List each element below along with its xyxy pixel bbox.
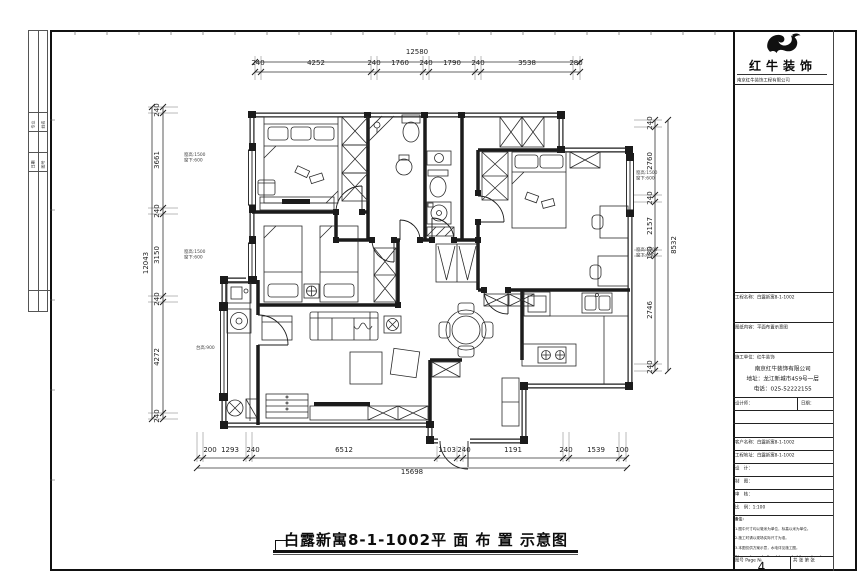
- kitchen-fixtures: [522, 292, 628, 384]
- title-block: 红牛装饰 南京红牛装饰工程有限公司 工程名称：白露新寓8-1-1002 图纸内容…: [733, 30, 833, 570]
- notes-cell: 备注： 1.图中尺寸均以毫米为单位，标高以米为单位。 2.施工时请以现场实际尺寸…: [733, 515, 833, 556]
- dim-label: 240: [646, 191, 654, 204]
- bathroom2-fixtures: [427, 151, 454, 236]
- note-line: 窗下:600: [184, 255, 203, 260]
- date-label: 日期：: [801, 400, 814, 406]
- side-table-lamp-icon: [384, 316, 401, 333]
- scale-row: 比 例：1:100: [733, 502, 833, 515]
- company-header: 施工单位：红牛装饰: [735, 354, 788, 360]
- blank-cell: [733, 84, 833, 292]
- notes-title: 备注：: [735, 517, 778, 521]
- project-name-cell: 工程名称：白露新寓8-1-1002: [733, 292, 833, 322]
- bedroom2-bed-icon: [512, 152, 566, 228]
- dim-bottom-total: 15698: [401, 468, 423, 476]
- dim-label: 1103: [438, 446, 456, 454]
- note-line: 台高:900: [196, 345, 215, 350]
- dim-label: 4252: [307, 59, 325, 67]
- entry-cabinet-icon: [502, 378, 519, 426]
- dim-label: 3538: [518, 59, 536, 67]
- bedroom2-corner-cabinet-icon: [570, 152, 600, 168]
- page-number: 4: [733, 560, 790, 570]
- window-note: 窗高:1500 窗下:600: [636, 247, 657, 258]
- check-label: 审 核：: [735, 491, 788, 497]
- company-phone: 电话：025-52222155: [735, 385, 830, 393]
- address-row: 工程地址：白露新寓8-1-1002: [733, 450, 833, 463]
- window-note: 窗高:1500 窗下:600: [184, 249, 205, 260]
- company-cell: 施工单位：红牛装饰 南京红牛装饰有限公司 地址：龙江新城市459号一层 电话：0…: [733, 352, 833, 397]
- dim-right-total: 8532: [670, 236, 678, 254]
- logo-cell: 红牛装饰 南京红牛装饰工程有限公司: [733, 30, 833, 84]
- cell-divider: [797, 398, 798, 410]
- dim-label: 3150: [153, 246, 161, 264]
- dim-label: 2760: [646, 152, 654, 170]
- drawing-content: 图纸内容：平面布置示意图: [735, 324, 788, 330]
- twin-beds-icon: [264, 226, 358, 302]
- note-line: 窗下:600: [636, 176, 655, 181]
- draft-row: 制 图：: [733, 476, 833, 489]
- dim-label: 240: [457, 446, 470, 454]
- bedroom2-wardrobe-icon: [482, 152, 508, 200]
- designer-label: 设计师：: [735, 400, 753, 406]
- drawing-title: 白露新寓8-1-1002平 面 布 置 示意图: [284, 529, 568, 550]
- dim-label: 6512: [335, 446, 353, 454]
- design-label: 设 计：: [735, 465, 788, 471]
- window-note: 台高:900: [196, 345, 215, 351]
- entry-closet-icon: [432, 362, 460, 377]
- note-line: 窗高:1500: [184, 152, 205, 157]
- interior-walls: [252, 115, 630, 425]
- note: 3.本图仅供方案示意，水电详见施工图。: [735, 546, 778, 550]
- note-line: 窗下:600: [636, 253, 655, 258]
- client-name: 客户名称：白露新寓8-1-1002: [735, 439, 788, 445]
- twin-wardrobe-icon: [374, 248, 396, 302]
- dim-label: 240: [471, 59, 484, 67]
- project-name: 工程名称：白露新寓8-1-1002: [735, 294, 788, 300]
- dim-label: 240: [367, 59, 380, 67]
- tv-dresser-icon: [266, 394, 308, 418]
- bedroom2-desk2-icon: [590, 256, 628, 286]
- note-line: 窗高:1500: [184, 249, 205, 254]
- bedroom2-desk-icon: [592, 206, 628, 238]
- client-row: 客户名称：白露新寓8-1-1002: [733, 437, 833, 450]
- dim-label: 1293: [221, 446, 239, 454]
- dim-label: 240: [251, 59, 264, 67]
- dim-label: 1539: [587, 446, 605, 454]
- designer-date-row: 设计师： 日期：: [733, 397, 833, 410]
- dim-label: 3661: [153, 151, 161, 169]
- title-underline: [273, 550, 578, 553]
- note: 1.图中尺寸均以毫米为单位，标高以米为单位。: [735, 527, 778, 531]
- dim-label: 2157: [646, 217, 654, 235]
- dim-label: 240: [646, 116, 654, 129]
- dim-label: 280: [569, 59, 582, 67]
- company-address: 地址：龙江新城市459号一层: [735, 375, 830, 383]
- brand-divider: [737, 74, 827, 75]
- dim-label: 200: [203, 446, 216, 454]
- window-note: 窗高:1500 窗下:600: [636, 170, 657, 181]
- sofa-icon: [310, 312, 378, 340]
- scale-label: 比 例：1:100: [735, 504, 788, 510]
- dim-top-total: 12580: [406, 48, 428, 56]
- master-wardrobe-icon: [342, 117, 368, 201]
- sideboard-icon: [484, 294, 534, 306]
- hall-closet-icon: [500, 117, 544, 147]
- sheet-count-label: 共 张 第 张: [793, 557, 815, 563]
- dim-label: 240: [419, 59, 432, 67]
- master-chair-icon: [258, 180, 275, 195]
- drawing-sheet: { "sheet": { "drawing_title": "白露新寓8-1-1…: [0, 0, 860, 580]
- dim-label: 240: [153, 103, 161, 116]
- design-row: 设 计：: [733, 463, 833, 476]
- drawing-content-cell: 图纸内容：平面布置示意图: [733, 322, 833, 352]
- hongniu-bull-logo-icon: [753, 31, 813, 57]
- dim-label: 240: [153, 204, 161, 217]
- bathroom1-fixtures: [369, 115, 420, 175]
- dim-label: 100: [615, 446, 628, 454]
- dim-label: 1191: [504, 446, 522, 454]
- dim-label: 240: [246, 446, 259, 454]
- company-name: 南京红牛装饰有限公司: [735, 365, 830, 373]
- note-line: 窗下:600: [184, 158, 203, 163]
- note: 2.施工时请以现场实际尺寸为准。: [735, 536, 778, 540]
- dim-label: 2746: [646, 301, 654, 319]
- brand-name: 红牛装饰: [733, 57, 833, 74]
- dim-label: 4272: [153, 348, 161, 366]
- note-line: 窗高:1500: [636, 170, 657, 175]
- wall-openings: [218, 150, 636, 447]
- page-row: 图号 Page №. 共 张 第 张 4: [733, 556, 833, 570]
- cell-divider: [790, 557, 791, 570]
- coffee-table-icon: [350, 348, 420, 384]
- kitchen-strip-fixtures: [227, 283, 257, 421]
- dim-label: 1790: [443, 59, 461, 67]
- brand-subtitle: 南京红牛装饰工程有限公司: [737, 77, 790, 83]
- windows: [220, 150, 634, 395]
- project-address: 工程地址：白露新寓8-1-1002: [735, 452, 788, 458]
- dim-label: 240: [153, 292, 161, 305]
- check-row: 审 核：: [733, 489, 833, 502]
- master-dresser-icon: [260, 197, 334, 210]
- note-line: 窗高:1500: [636, 247, 657, 252]
- empty-row: [733, 423, 833, 437]
- title-underline-thin: [273, 554, 578, 555]
- armchair-icon: [262, 316, 292, 340]
- dim-label: 240: [153, 409, 161, 422]
- dim-label: 240: [559, 446, 572, 454]
- window-note: 窗高:1500 窗下:600: [184, 152, 205, 163]
- dim-label: 240: [646, 360, 654, 373]
- empty-row: [733, 410, 833, 423]
- dining-table-icon: [439, 303, 493, 357]
- dim-label: 1760: [391, 59, 409, 67]
- tv-cabinet-icon: [310, 402, 428, 420]
- floor-plan: [0, 0, 860, 580]
- hall-double-closet-icon: [436, 244, 478, 282]
- dim-left-total: 12043: [142, 252, 150, 274]
- draft-label: 制 图：: [735, 478, 788, 484]
